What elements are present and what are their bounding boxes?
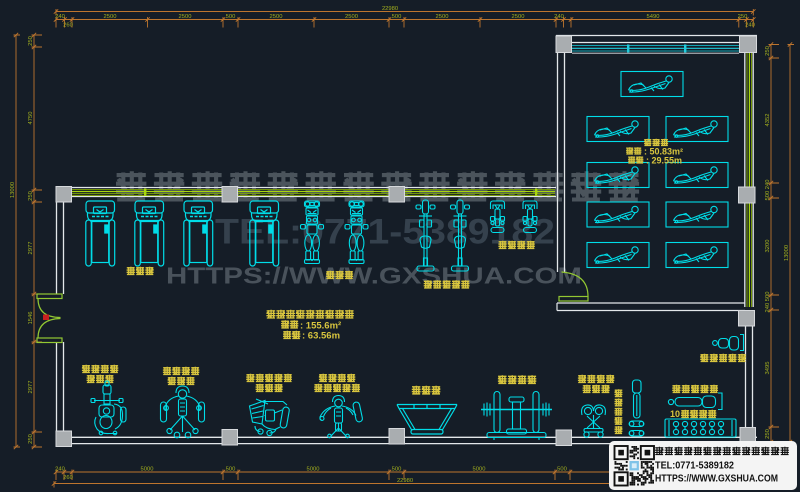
svg-text:500: 500	[226, 467, 236, 473]
svg-text:5000: 5000	[473, 467, 486, 473]
svg-text:240: 240	[55, 467, 65, 473]
svg-text:500: 500	[392, 467, 402, 473]
svg-text:250: 250	[765, 429, 771, 439]
svg-text:260: 260	[63, 475, 73, 481]
svg-text:2500: 2500	[270, 14, 283, 20]
svg-text:10: 10	[670, 409, 680, 419]
svg-text:13000: 13000	[784, 245, 790, 261]
svg-text:250: 250	[28, 36, 34, 46]
svg-text:: 63.56m: : 63.56m	[302, 331, 340, 342]
svg-text:4750: 4750	[28, 112, 34, 125]
svg-text:500 240: 500 240	[765, 180, 771, 201]
svg-text:240: 240	[745, 23, 755, 29]
svg-text:22980: 22980	[397, 478, 413, 484]
svg-text:5000: 5000	[307, 467, 320, 473]
svg-text:2500: 2500	[512, 14, 525, 20]
svg-text:250: 250	[765, 46, 771, 56]
svg-text:: 29.55m: : 29.55m	[646, 156, 682, 166]
svg-text:2500: 2500	[179, 14, 192, 20]
svg-text:3200: 3200	[765, 240, 771, 253]
svg-text:240: 240	[554, 14, 564, 20]
svg-text:HTTPS://WWW.GXSHUA.COM: HTTPS://WWW.GXSHUA.COM	[655, 474, 778, 485]
svg-text:2977: 2977	[28, 242, 34, 255]
svg-text:2500: 2500	[345, 14, 358, 20]
svg-text:250: 250	[738, 14, 748, 20]
svg-text:500: 500	[226, 14, 236, 20]
svg-text:2977: 2977	[28, 381, 34, 394]
svg-text:5490: 5490	[647, 14, 660, 20]
svg-text:260: 260	[63, 23, 73, 29]
svg-text:500: 500	[392, 14, 402, 20]
svg-text:1546: 1546	[28, 312, 34, 325]
svg-text:250: 250	[28, 191, 34, 201]
svg-text:2500: 2500	[436, 14, 449, 20]
svg-text:5000: 5000	[141, 467, 154, 473]
svg-text:500: 500	[557, 467, 567, 473]
svg-text:240: 240	[55, 14, 65, 20]
svg-text:2500: 2500	[104, 14, 117, 20]
svg-text:TEL:0771-5389182: TEL:0771-5389182	[655, 460, 734, 472]
svg-text:3495: 3495	[765, 362, 771, 375]
svg-text:240 500: 240 500	[765, 292, 771, 313]
svg-text:HTTPS://WWW.GXSHUA.COM: HTTPS://WWW.GXSHUA.COM	[166, 263, 582, 289]
svg-text:4352: 4352	[765, 114, 771, 127]
svg-text:22980: 22980	[382, 6, 398, 12]
svg-text:13000: 13000	[10, 182, 16, 198]
svg-text:250: 250	[28, 434, 34, 444]
